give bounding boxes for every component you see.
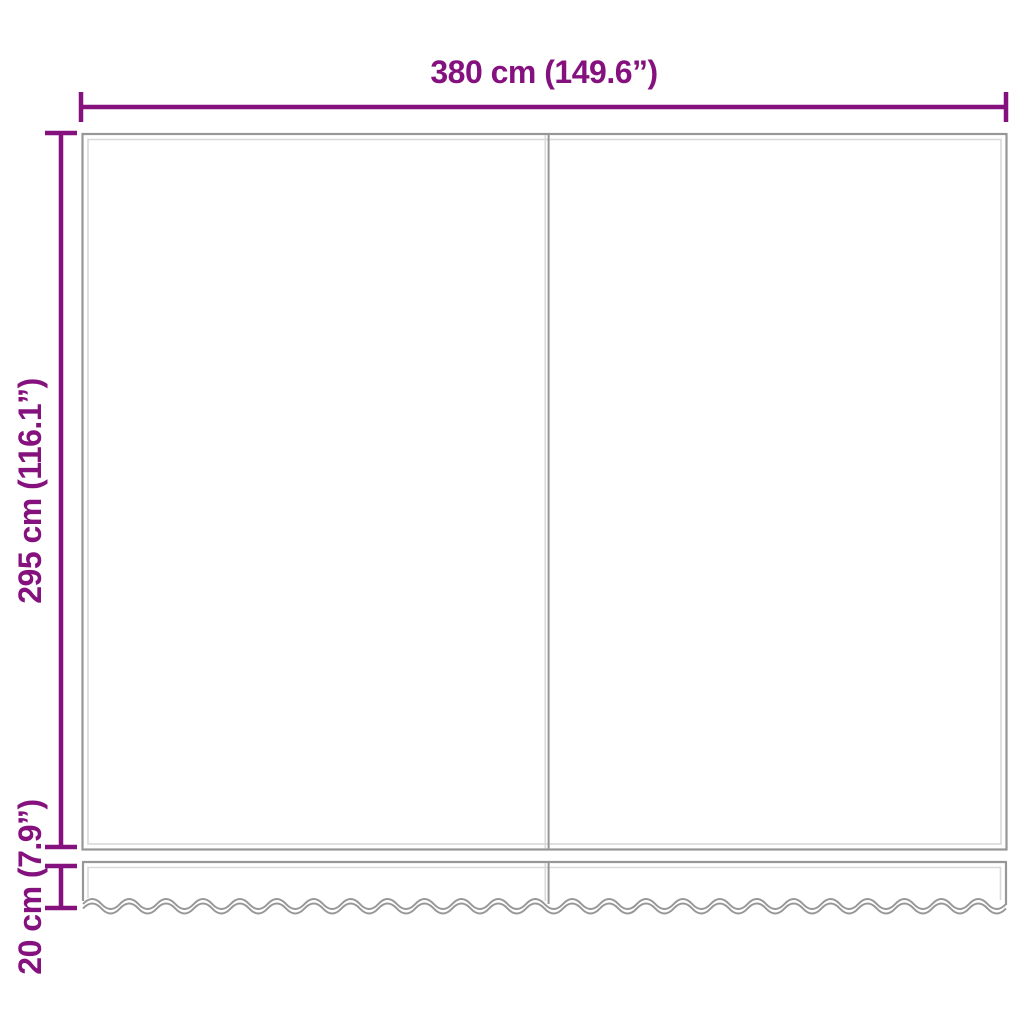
width-dimension: 380 cm (149.6”) [81, 54, 1006, 122]
width-dimension-label: 380 cm (149.6”) [430, 54, 657, 90]
fabric-panel [83, 134, 1007, 850]
height-dimension: 295 cm (116.1”) [12, 133, 77, 847]
awning-dimension-diagram: 380 cm (149.6”) 295 cm (116.1”) 20 cm (7… [0, 0, 1024, 1024]
valance-height-dimension: 20 cm (7.9”) [12, 799, 77, 974]
valance-inner-hem [88, 868, 1001, 901]
fabric-panel-divider [545, 135, 548, 849]
product-dimension-image: 380 cm (149.6”) 295 cm (116.1”) 20 cm (7… [0, 0, 1024, 1024]
valance-height-dimension-label: 20 cm (7.9”) [12, 799, 48, 974]
valance-divider [545, 863, 548, 904]
valance [82, 862, 1007, 914]
height-dimension-label: 295 cm (116.1”) [12, 378, 48, 604]
